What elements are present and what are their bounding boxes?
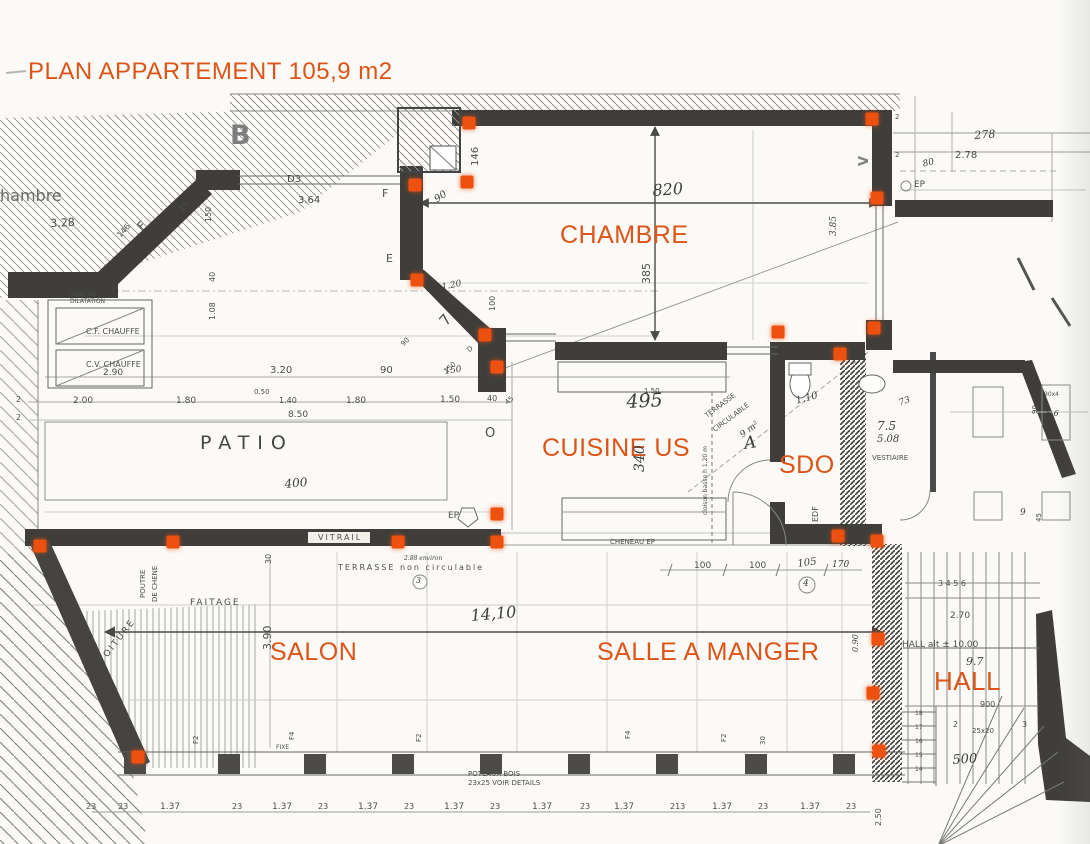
corner-marker — [772, 326, 785, 339]
plan-text: 2 — [895, 114, 899, 121]
plan-text: F4 — [625, 731, 632, 739]
plan-text: 100 — [749, 562, 766, 571]
plan-text: TERRASSE non circulable — [338, 564, 484, 572]
corner-marker — [871, 535, 884, 548]
plan-text: 30 — [760, 736, 767, 745]
plan-text: 23 — [580, 803, 590, 811]
corner-marker — [832, 530, 845, 543]
plan-text: V — [858, 156, 871, 166]
plan-text: 170 — [832, 561, 849, 570]
plan-text: 1.37 — [614, 803, 634, 812]
plan-text: 16 — [915, 739, 923, 745]
plan-text: 100 — [694, 562, 711, 571]
plan-text: 1.80 — [176, 397, 196, 406]
plan-text: 9 — [1020, 509, 1026, 518]
plan-text: 2.90 — [103, 369, 123, 378]
corner-marker — [867, 687, 880, 700]
corner-marker — [834, 348, 847, 361]
corner-marker — [392, 536, 405, 549]
plan-text: hambre — [0, 188, 62, 204]
plan-text: 23 — [758, 803, 768, 811]
plan-text: 1.08 — [209, 302, 217, 320]
plan-text: VITRAIL — [318, 534, 362, 542]
plan-text: 100 — [489, 296, 497, 311]
plan-text: 40 — [487, 395, 497, 403]
plan-text: 2 — [16, 396, 21, 404]
plan-text: cloison basse h 1,20 m — [703, 446, 709, 515]
plan-text: F2 — [721, 734, 728, 742]
plan-text: PATIO — [200, 434, 294, 453]
plan-text: 7.5 — [877, 420, 896, 432]
corner-marker — [479, 329, 492, 342]
plan-text: 1.37 — [800, 803, 820, 812]
plan-text: 0.50 — [254, 389, 270, 396]
corner-marker — [871, 192, 884, 205]
corner-marker — [132, 751, 145, 764]
plan-text: F2 — [416, 734, 423, 742]
plan-text: 3 — [1022, 721, 1027, 729]
plan-text: 15 — [915, 753, 923, 759]
plan-text: DE CHENE — [152, 566, 159, 602]
plan-text: 400 — [284, 476, 308, 490]
corner-marker — [866, 113, 879, 126]
plan-text: 385 — [641, 263, 652, 284]
plan-text: 146 — [471, 147, 481, 166]
plan-text: HALL alt ± 10.00 — [902, 641, 978, 650]
room-label-hall: HALL — [934, 666, 1001, 697]
plan-text: 30 — [265, 554, 273, 564]
plan-text: O — [485, 427, 495, 440]
plan-text: 3 4 5 6 — [938, 580, 966, 588]
plan-text: 3.20 — [270, 366, 292, 376]
plan-text: 495 — [626, 391, 663, 412]
plan-text: 340 — [633, 445, 647, 472]
plan-text: 900 — [980, 701, 995, 709]
plan-text: CHENEAU EP — [610, 539, 655, 546]
plan-text: 1.37 — [444, 803, 464, 812]
floorplan-drawing — [0, 0, 1090, 844]
plan-text: 3.64 — [298, 196, 320, 206]
plan-text: 90 — [1032, 405, 1039, 414]
plan-text: 500 — [952, 752, 978, 767]
corner-marker — [411, 274, 424, 287]
plan-text: 23 — [490, 803, 500, 811]
plan-text: F — [382, 188, 388, 199]
plan-text: 1.50 — [440, 396, 460, 405]
plan-text: 23 — [318, 803, 328, 811]
corner-marker — [873, 745, 886, 758]
plan-text: B — [230, 122, 251, 149]
plan-text: F2 — [193, 736, 200, 744]
plan-text: 5.6 — [1046, 410, 1059, 418]
plan-text: 1.37 — [160, 803, 180, 812]
plan-text: 8.50 — [288, 411, 308, 420]
plan-text: 2 — [895, 152, 899, 159]
plan-text: 3 — [416, 577, 421, 585]
plan-text: 278 — [974, 129, 996, 141]
plan-text: 18 — [915, 711, 923, 717]
plan-text: 213 — [670, 803, 685, 811]
corner-marker — [167, 536, 180, 549]
plan-text: 820 — [652, 181, 684, 199]
plan-text: 1.37 — [532, 803, 552, 812]
plan-text: 2.00 — [73, 397, 93, 406]
plan-text: 23x25 VOIR DETAILS — [468, 780, 540, 787]
plan-text: 23 — [404, 803, 414, 811]
plan-text: 14 — [915, 767, 923, 773]
corner-marker — [491, 508, 504, 521]
plan-text: C.F. CHAUFFE — [86, 328, 140, 336]
room-label-salon: SALON — [270, 638, 357, 667]
plan-text: FAITAGE — [190, 599, 241, 608]
plan-text: 150 — [205, 207, 213, 222]
corner-marker — [491, 361, 504, 374]
plan-text: 40 — [209, 272, 217, 282]
plan-text: 2 — [16, 414, 21, 422]
corner-marker — [491, 536, 504, 549]
plan-text: DILATATION — [70, 299, 105, 305]
room-label-chambre: CHAMBRE — [560, 221, 689, 250]
plan-text: FIXE — [276, 745, 289, 751]
plan-text: VESTIAIRE — [872, 455, 908, 462]
plan-text: 4 — [803, 580, 809, 589]
plan-text: 2 — [953, 721, 958, 729]
plan-text: 23 — [846, 803, 856, 811]
room-label-salle-a-manger: SALLE A MANGER — [597, 638, 819, 667]
plan-text: 0.90 — [852, 634, 860, 652]
plan-text: 2.50 — [875, 808, 883, 826]
corner-marker — [409, 179, 422, 192]
plan-text: 14,10 — [470, 604, 517, 624]
plan-text: D3 — [287, 175, 301, 185]
plan-text: 5.08 — [877, 435, 899, 445]
plan-text: 23 — [86, 803, 96, 811]
plan-text: A — [743, 434, 758, 453]
corner-marker — [34, 540, 47, 553]
plan-text: E — [386, 253, 393, 264]
plan-text: 90 — [380, 366, 393, 376]
plan-text: 2.70 — [950, 612, 970, 621]
plan-text: 3.85 — [830, 216, 839, 236]
corner-marker — [868, 322, 881, 335]
floorplan-page: PLAN APPARTEMENT 105,9 m2 CHAMBRECUISINE… — [0, 0, 1090, 844]
plan-text: 90x4 — [1044, 392, 1059, 398]
corner-marker — [461, 176, 474, 189]
plan-text: EP — [448, 512, 459, 521]
plan-text: 25x20 — [972, 728, 994, 735]
plan-text: F4 — [289, 732, 296, 740]
corner-marker — [872, 633, 885, 646]
plan-text: 3.90 — [262, 626, 273, 651]
plan-text: 23 — [232, 803, 242, 811]
plan-text: 1.80 — [346, 397, 366, 406]
plan-text: POTEAUX BOIS — [468, 771, 520, 778]
plan-text: 1.40 — [279, 397, 297, 405]
plan-text: 23 — [118, 803, 128, 811]
room-label-cuisine-us: CUISINE US — [542, 434, 690, 463]
plan-text: EP — [914, 181, 925, 190]
plan-text: 9.7 — [966, 656, 984, 667]
corner-marker — [463, 117, 476, 130]
scan-edge-shadow — [1056, 0, 1090, 844]
plan-text: 45 — [1036, 513, 1043, 522]
plan-text: 17 — [915, 725, 923, 731]
plan-text: 1.37 — [272, 803, 292, 812]
plan-text: 1.37 — [358, 803, 378, 812]
room-label-sdo: SDO — [779, 451, 835, 480]
plan-text: POUTRE — [140, 570, 147, 598]
plan-text: 2.88 environ — [404, 556, 442, 562]
page-title: PLAN APPARTEMENT 105,9 m2 — [28, 58, 393, 86]
plan-text: EDF — [812, 506, 820, 522]
plan-text: 1.37 — [712, 803, 732, 812]
plan-text: 3.28 — [50, 217, 75, 229]
plan-text: 2.78 — [955, 151, 977, 161]
